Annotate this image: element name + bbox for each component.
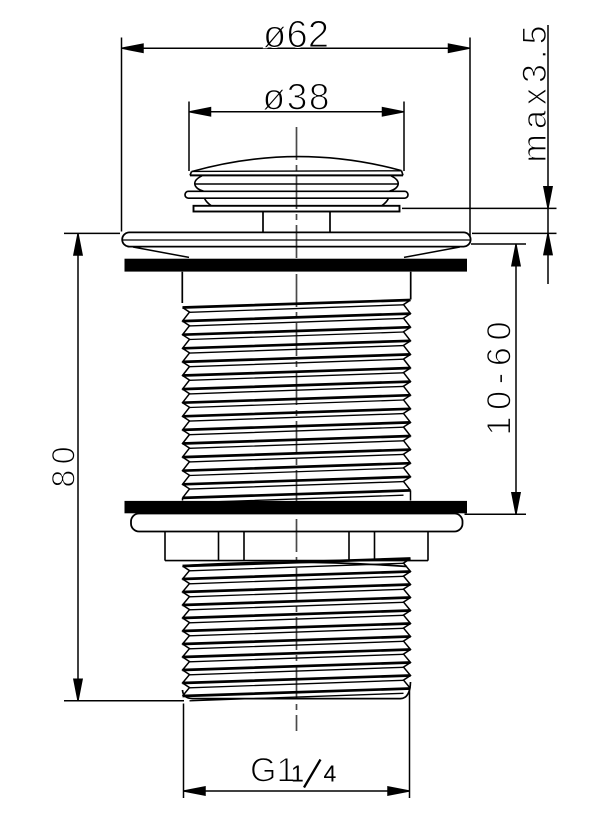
svg-text:G1: G1 [250,752,295,790]
svg-text:1: 1 [291,761,304,787]
svg-text:4: 4 [324,761,337,787]
svg-text:10-60: 10-60 [481,322,519,436]
svg-text:ø38: ø38 [263,77,330,118]
svg-text:ø62: ø62 [263,14,329,56]
